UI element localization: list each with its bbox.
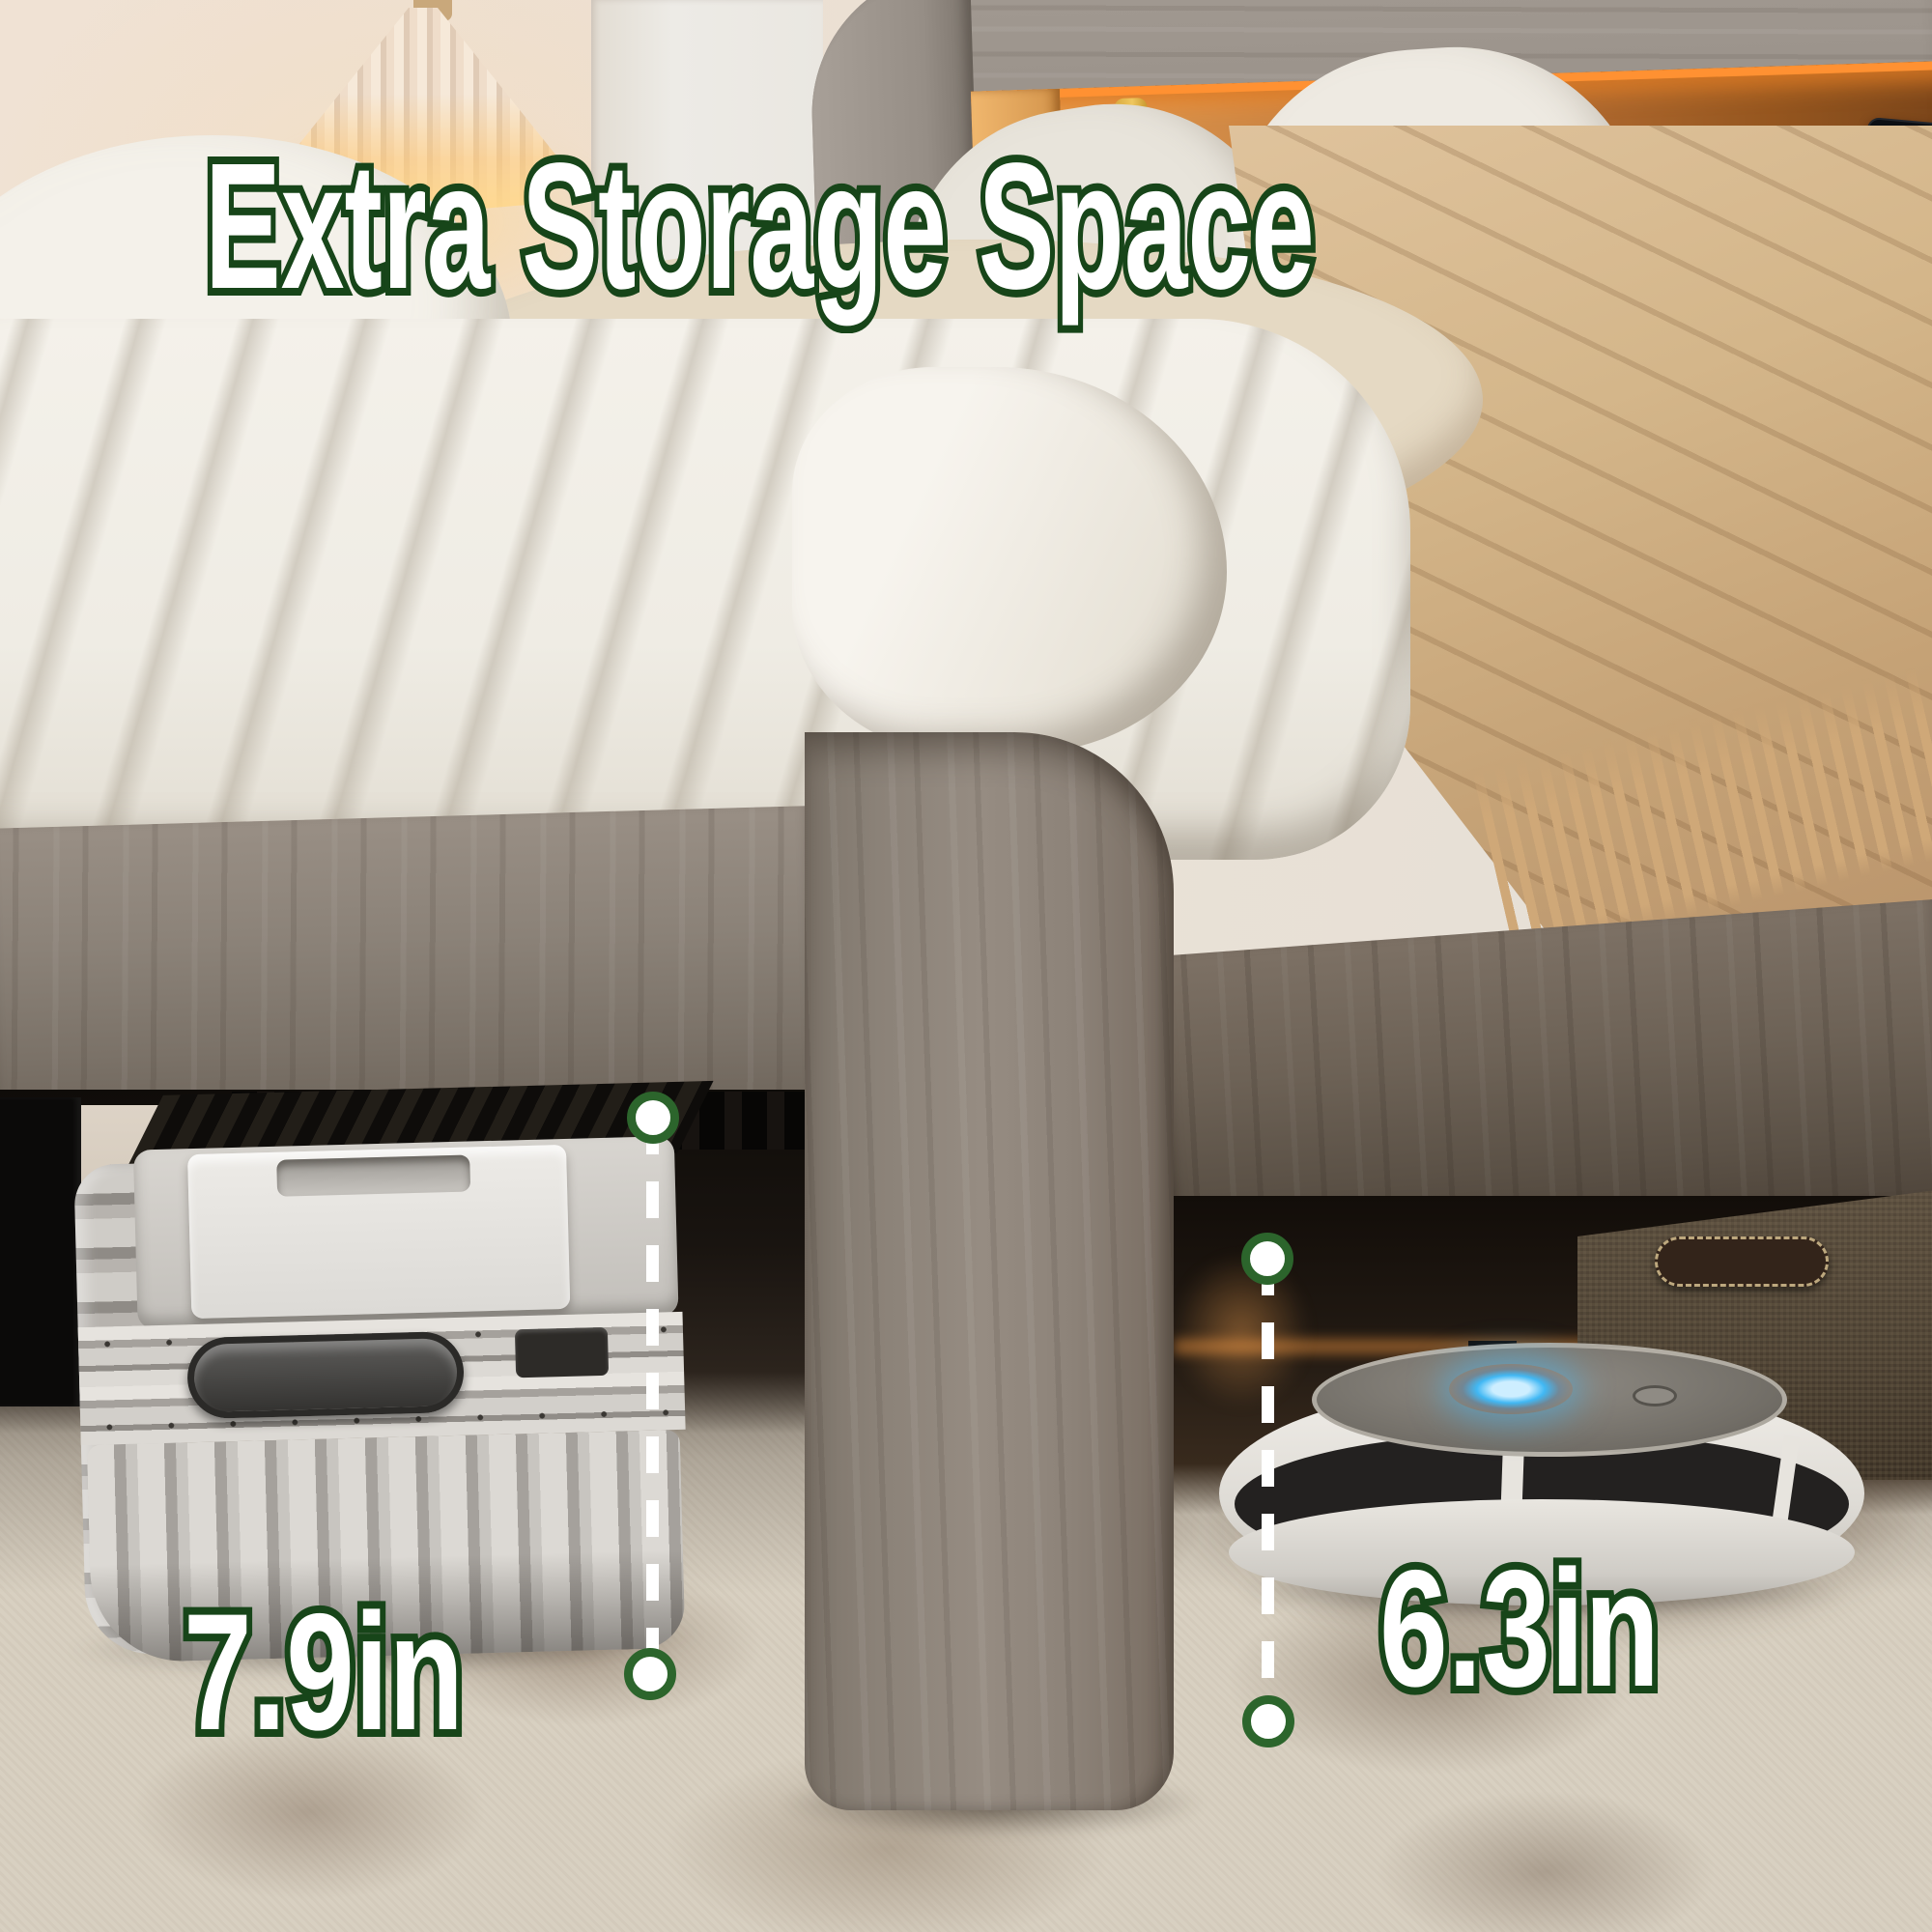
suitcase-handle bbox=[186, 1331, 465, 1419]
product-image-canvas: 70% Charged bbox=[0, 0, 1932, 1932]
suitcase-grip-slot bbox=[276, 1155, 470, 1197]
dashed-measure-line-left bbox=[646, 1118, 659, 1674]
page-title: Extra Storage Space bbox=[205, 137, 1315, 317]
dashed-measure-line-right bbox=[1262, 1259, 1274, 1721]
suitcase bbox=[71, 1082, 691, 1663]
storage-bag-handle bbox=[1655, 1236, 1829, 1287]
bed-front-post bbox=[805, 732, 1174, 1810]
measure-endpoint-dot bbox=[627, 1092, 679, 1144]
bed-leg-black bbox=[0, 1097, 81, 1406]
clearance-label-right: 6.3in bbox=[1379, 1546, 1660, 1712]
measure-endpoint-dot bbox=[1241, 1233, 1293, 1285]
clearance-label-left: 7.9in bbox=[184, 1589, 464, 1755]
measure-endpoint-dot bbox=[1242, 1695, 1294, 1747]
vacuum-power-ring bbox=[1449, 1364, 1573, 1414]
vacuum-button bbox=[1633, 1385, 1677, 1406]
measure-endpoint-dot bbox=[624, 1648, 676, 1700]
suitcase-lock bbox=[515, 1327, 609, 1378]
